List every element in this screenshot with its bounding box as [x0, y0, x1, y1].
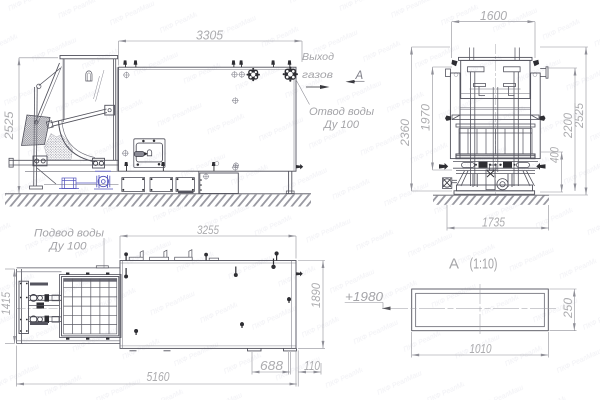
svg-text:3255: 3255 — [197, 223, 219, 237]
svg-text:2525: 2525 — [2, 111, 16, 140]
svg-text:Выход: Выход — [302, 51, 334, 63]
svg-text:Ду 100: Ду 100 — [47, 241, 87, 253]
svg-text:Подвод воды: Подвод воды — [34, 228, 104, 240]
svg-text:2525: 2525 — [572, 103, 586, 129]
svg-text:3305: 3305 — [196, 28, 224, 43]
svg-text:1735: 1735 — [482, 216, 505, 230]
svg-text:Отвод воды: Отвод воды — [309, 106, 374, 118]
svg-text:110: 110 — [304, 359, 320, 373]
svg-text:688: 688 — [260, 359, 283, 373]
svg-text:газов: газов — [302, 69, 334, 81]
svg-text:+1980: +1980 — [345, 289, 384, 304]
svg-text:1970: 1970 — [419, 104, 433, 131]
svg-text:400: 400 — [548, 147, 562, 163]
svg-text:1890: 1890 — [309, 283, 323, 308]
svg-text:Ду 100: Ду 100 — [322, 119, 360, 131]
svg-text:5160: 5160 — [147, 370, 170, 384]
svg-text:А: А — [449, 257, 459, 273]
svg-text:(1:10): (1:10) — [470, 257, 498, 273]
svg-text:250: 250 — [561, 298, 575, 319]
svg-text:1415: 1415 — [1, 291, 13, 315]
svg-text:1010: 1010 — [470, 342, 492, 356]
svg-text:2360: 2360 — [398, 119, 412, 147]
svg-text:А: А — [355, 70, 364, 82]
svg-text:1600: 1600 — [480, 8, 508, 23]
